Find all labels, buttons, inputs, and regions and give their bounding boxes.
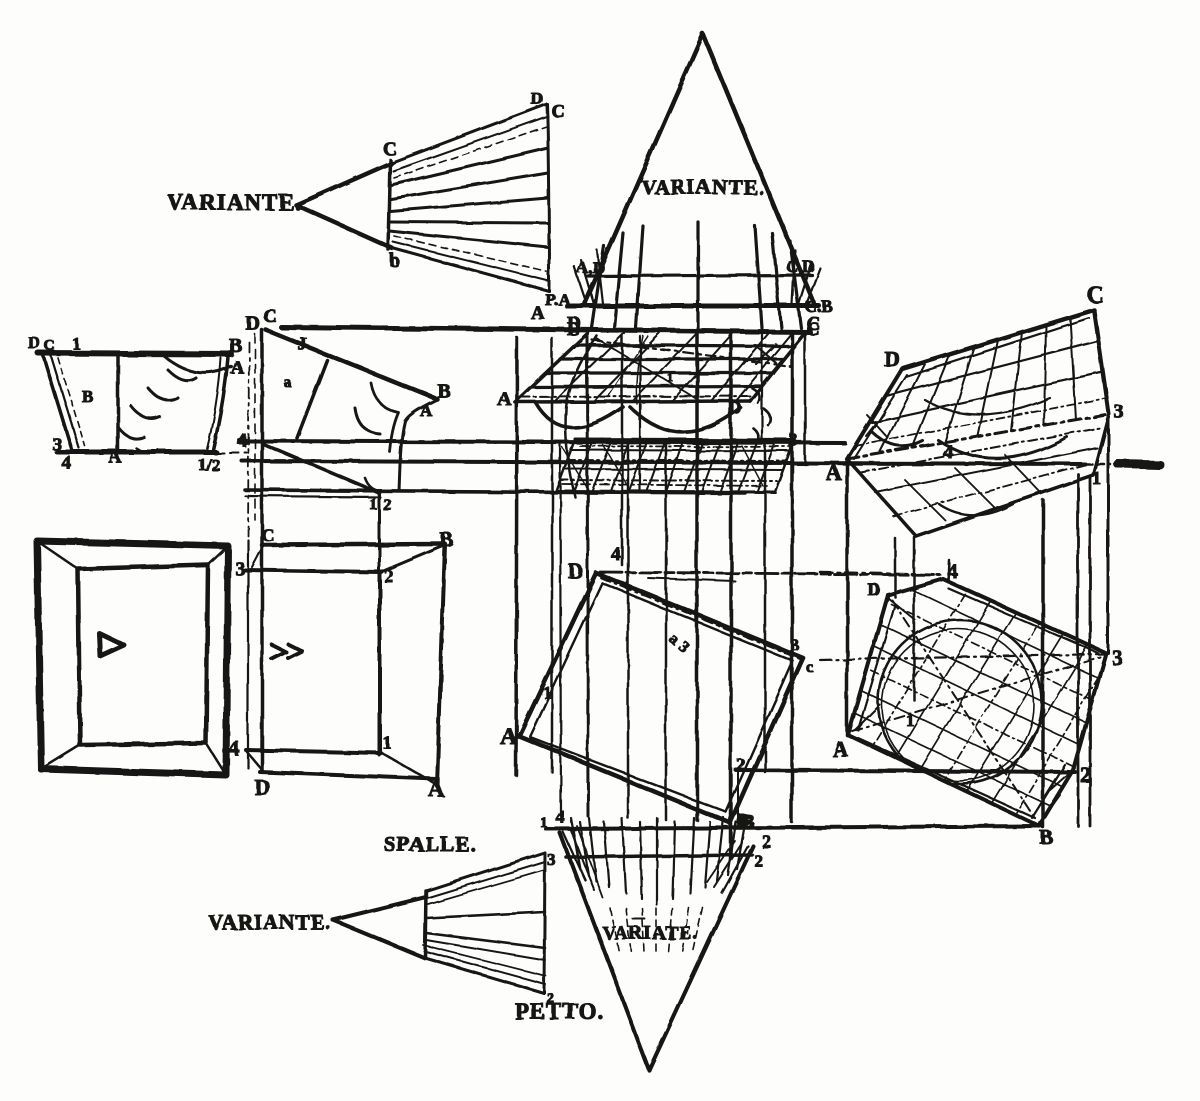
- svg-text:B: B: [737, 810, 750, 831]
- svg-text:VARIANTE.: VARIANTE.: [208, 910, 332, 934]
- svg-text:C: C: [551, 101, 565, 122]
- svg-text:A: A: [108, 446, 121, 466]
- svg-text:J: J: [298, 334, 307, 354]
- svg-text:3: 3: [791, 637, 799, 654]
- svg-text:VARIANTE.: VARIANTE.: [167, 190, 301, 215]
- svg-text:2: 2: [384, 566, 393, 586]
- svg-text:D: D: [568, 559, 583, 583]
- svg-text:B: B: [82, 387, 93, 406]
- svg-text:4: 4: [556, 807, 565, 827]
- svg-text:D: D: [28, 333, 40, 352]
- svg-text:4: 4: [229, 736, 240, 760]
- svg-text:PETTO.: PETTO.: [515, 999, 604, 1024]
- svg-text:D: D: [567, 313, 581, 335]
- svg-text:C: C: [261, 525, 274, 545]
- svg-text:D: D: [868, 580, 881, 600]
- svg-text:b: b: [389, 250, 400, 271]
- svg-text:VARIANTE.: VARIANTE.: [641, 175, 765, 199]
- svg-text:D: D: [246, 313, 260, 335]
- svg-text:3: 3: [1112, 645, 1123, 670]
- svg-text:1: 1: [1092, 468, 1101, 488]
- svg-text:3: 3: [52, 434, 62, 455]
- svg-text:1: 1: [668, 371, 674, 385]
- svg-text:A: A: [531, 303, 545, 324]
- svg-text:C: C: [806, 313, 820, 335]
- svg-text:2: 2: [762, 832, 772, 853]
- svg-text:1: 1: [906, 711, 915, 730]
- svg-text:4: 4: [611, 544, 621, 565]
- svg-text:D: D: [884, 346, 900, 371]
- svg-text:B: B: [437, 380, 450, 402]
- svg-text:2: 2: [383, 495, 392, 514]
- svg-text:A,D: A,D: [576, 258, 605, 277]
- svg-text:4: 4: [947, 560, 957, 582]
- svg-text:A: A: [832, 736, 848, 761]
- svg-text:D: D: [729, 398, 742, 418]
- svg-text:c: c: [806, 659, 813, 676]
- svg-text:C,D: C,D: [786, 257, 815, 276]
- svg-text:A: A: [230, 357, 244, 378]
- svg-text:C: C: [1087, 283, 1104, 309]
- svg-text:C: C: [263, 306, 277, 327]
- svg-text:3: 3: [547, 850, 556, 869]
- svg-text:1: 1: [382, 732, 391, 752]
- svg-text:1: 1: [369, 496, 377, 513]
- svg-text:a: a: [284, 375, 292, 391]
- svg-text:A: A: [497, 388, 512, 410]
- svg-text:C: C: [44, 338, 55, 354]
- svg-text:B: B: [1040, 827, 1053, 849]
- svg-text:2: 2: [754, 851, 763, 870]
- svg-text:4: 4: [62, 453, 72, 474]
- svg-text:1: 1: [540, 815, 548, 831]
- svg-text:A: A: [500, 724, 518, 750]
- svg-text:VARIATE.: VARIATE.: [602, 923, 699, 944]
- svg-text:1: 1: [72, 334, 81, 353]
- svg-text:B: B: [440, 529, 453, 551]
- svg-text:3: 3: [1114, 401, 1124, 423]
- svg-text:1: 1: [543, 683, 552, 702]
- svg-text:D: D: [531, 89, 543, 108]
- svg-text:A: A: [428, 776, 444, 801]
- svg-text:D: D: [255, 775, 271, 800]
- svg-text:3: 3: [235, 558, 245, 580]
- svg-text:B: B: [229, 335, 242, 357]
- svg-text:2: 2: [547, 991, 555, 1007]
- svg-text:2: 2: [1080, 762, 1091, 787]
- svg-text:A: A: [420, 401, 433, 420]
- svg-text:A: A: [826, 460, 842, 485]
- svg-text:4: 4: [943, 441, 953, 463]
- svg-text:SPALLE.: SPALLE.: [384, 832, 476, 856]
- svg-text:C: C: [383, 139, 397, 160]
- svg-text:1/2: 1/2: [198, 455, 220, 474]
